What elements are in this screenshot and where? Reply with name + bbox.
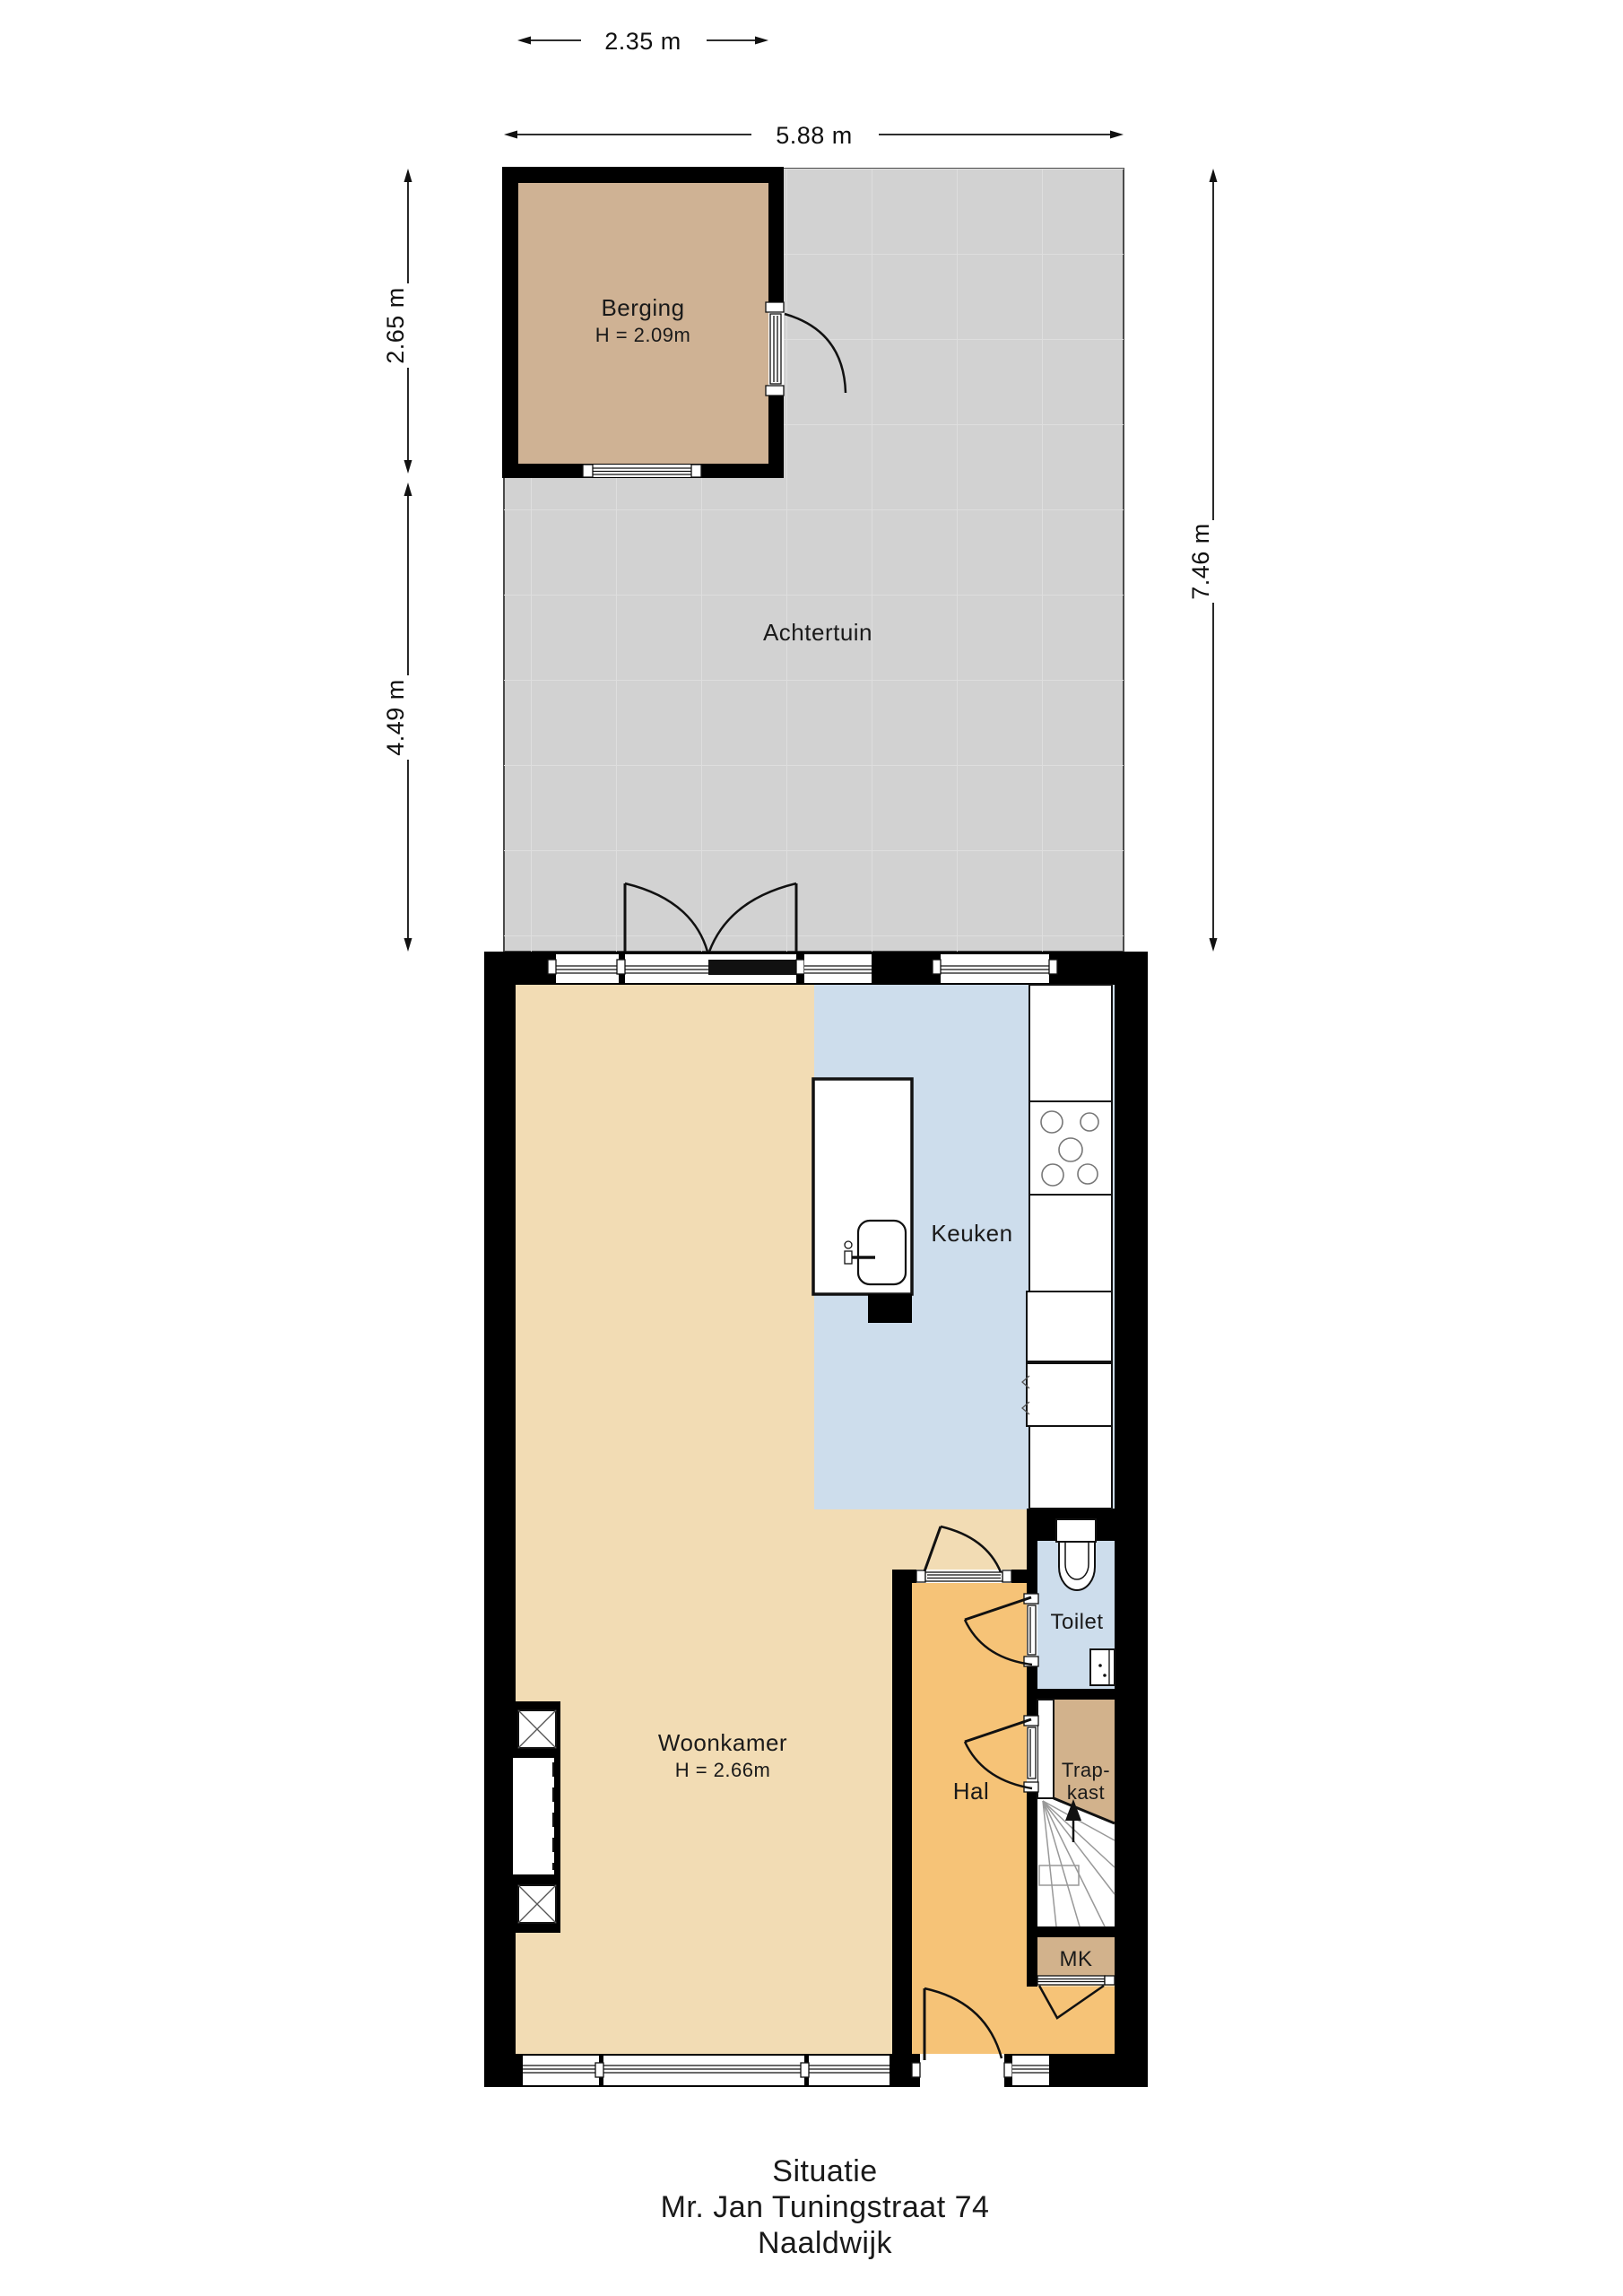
rear-window (933, 954, 1057, 983)
handbasin-tap-icon (1098, 1664, 1102, 1667)
window-opening (603, 2056, 804, 2085)
hal-floor (912, 1581, 1027, 2054)
counter-run (1029, 985, 1112, 1509)
dishwasher-unit (1027, 1291, 1112, 1361)
dimension-plot-width: 5.88 m (504, 122, 1124, 149)
door-jamb (1105, 1976, 1115, 1985)
door-panel (925, 1572, 1002, 1581)
window-opening (804, 954, 872, 983)
chimney-breast (513, 1701, 560, 1933)
front-window (595, 2056, 804, 2085)
door-jamb (796, 960, 804, 974)
trapkast-label-line1: Trap- (1062, 1759, 1110, 1781)
toilet-bottom-wall (1037, 1689, 1115, 1700)
window-opening (523, 2056, 599, 2085)
dimension-label: 2.35 m (604, 28, 681, 55)
sink-basin (858, 1221, 906, 1284)
arrowhead-icon (404, 169, 412, 182)
rear-window (804, 954, 872, 983)
door-jamb (617, 960, 625, 974)
dimension-plot-height: 7.46 m (1187, 169, 1218, 952)
arrowhead-icon (404, 460, 412, 474)
door-jamb (916, 1570, 925, 1582)
window-opening (941, 954, 1049, 983)
dimension-label: 7.46 m (1187, 523, 1214, 600)
door-opening (920, 2054, 1004, 2087)
kitchen-island (813, 1079, 912, 1323)
arrowhead-icon (504, 131, 517, 139)
window-jamb (548, 960, 556, 974)
hal-label: Hal (953, 1778, 990, 1805)
window-opening (556, 954, 619, 983)
arrowhead-icon (1110, 131, 1124, 139)
toilet-cistern (1056, 1519, 1096, 1542)
door-panel (1028, 1727, 1036, 1779)
caption-type: Situatie (772, 2154, 877, 2188)
handbasin-drain-icon (1103, 1674, 1107, 1677)
dimension-label: 4.49 m (382, 679, 409, 756)
arrowhead-icon (404, 938, 412, 952)
achtertuin-label: Achtertuin (763, 619, 872, 646)
toilet-bowl (1059, 1542, 1095, 1590)
dimension-label: 5.88 m (776, 122, 853, 149)
floorplan-drawing: Achtertuin 2.35 m 5.88 m 2.65 m 4.49 m 7… (0, 0, 1623, 2296)
caption-address: Mr. Jan Tuningstraat 74 (661, 2190, 990, 2224)
window-jamb (691, 465, 701, 477)
front-sidelight (1012, 2056, 1049, 2085)
toilet-handbasin (1090, 1649, 1115, 1685)
island-end-block (868, 1294, 912, 1323)
door-panel (1028, 1605, 1036, 1655)
meterkast-door-panel (1037, 1976, 1105, 1985)
window-opening (1012, 2056, 1049, 2085)
door-jamb (912, 2063, 920, 2077)
meterkast-label: MK (1060, 1947, 1093, 1971)
caption-city: Naaldwijk (758, 2226, 892, 2260)
hal-entry-floor (1027, 1987, 1115, 2054)
door-threshold (708, 960, 796, 975)
woonkamer-ceiling-label: H = 2.66m (675, 1759, 771, 1781)
house: MK (484, 883, 1148, 2087)
kitchen-counter (1022, 985, 1112, 1509)
door-jamb (1004, 2063, 1012, 2077)
front-window (801, 2056, 890, 2085)
tall-unit (1027, 1363, 1112, 1426)
faucet-knob-icon (845, 1241, 852, 1248)
dimension-label: 2.65 m (382, 287, 409, 364)
trapkast-door-panel (1037, 1700, 1054, 1798)
berging-ceiling-label: H = 2.09m (595, 324, 691, 346)
dimension-berging-width: 2.35 m (517, 28, 768, 55)
window-opening (809, 2056, 890, 2085)
arrowhead-icon (517, 37, 531, 45)
wall-niche (513, 1758, 554, 1874)
window-jamb (1049, 960, 1057, 974)
arrowhead-icon (755, 37, 768, 45)
meterkast-top-wall (1027, 1926, 1115, 1937)
dimension-garden-height: 4.49 m (382, 483, 412, 952)
hal-left-wall (892, 1581, 912, 2054)
window-jamb (801, 2063, 809, 2077)
front-window (523, 2056, 599, 2085)
door-panel (770, 314, 781, 384)
toilet-label: Toilet (1050, 1610, 1103, 1634)
arrowhead-icon (1210, 938, 1218, 952)
trapkast-label-line2: kast (1067, 1781, 1105, 1804)
dimension-berging-height: 2.65 m (382, 169, 412, 474)
faucet-base (845, 1251, 852, 1264)
rear-window (548, 954, 627, 983)
berging-window (583, 465, 701, 477)
floorplan-page: Achtertuin 2.35 m 5.88 m 2.65 m 4.49 m 7… (0, 0, 1623, 2296)
berging-label: Berging (601, 294, 684, 321)
window-jamb (933, 960, 941, 974)
door-jamb (1002, 1570, 1011, 1582)
window-jamb (595, 2063, 603, 2077)
window-jamb (583, 465, 593, 477)
keuken-label: Keuken (931, 1220, 1012, 1247)
woonkamer-label: Woonkamer (658, 1729, 787, 1756)
door-jamb (766, 302, 784, 312)
caption: Situatie Mr. Jan Tuningstraat 74 Naaldwi… (661, 2154, 990, 2260)
door-jamb (766, 386, 784, 396)
arrowhead-icon (1210, 169, 1218, 182)
arrowhead-icon (404, 483, 412, 496)
